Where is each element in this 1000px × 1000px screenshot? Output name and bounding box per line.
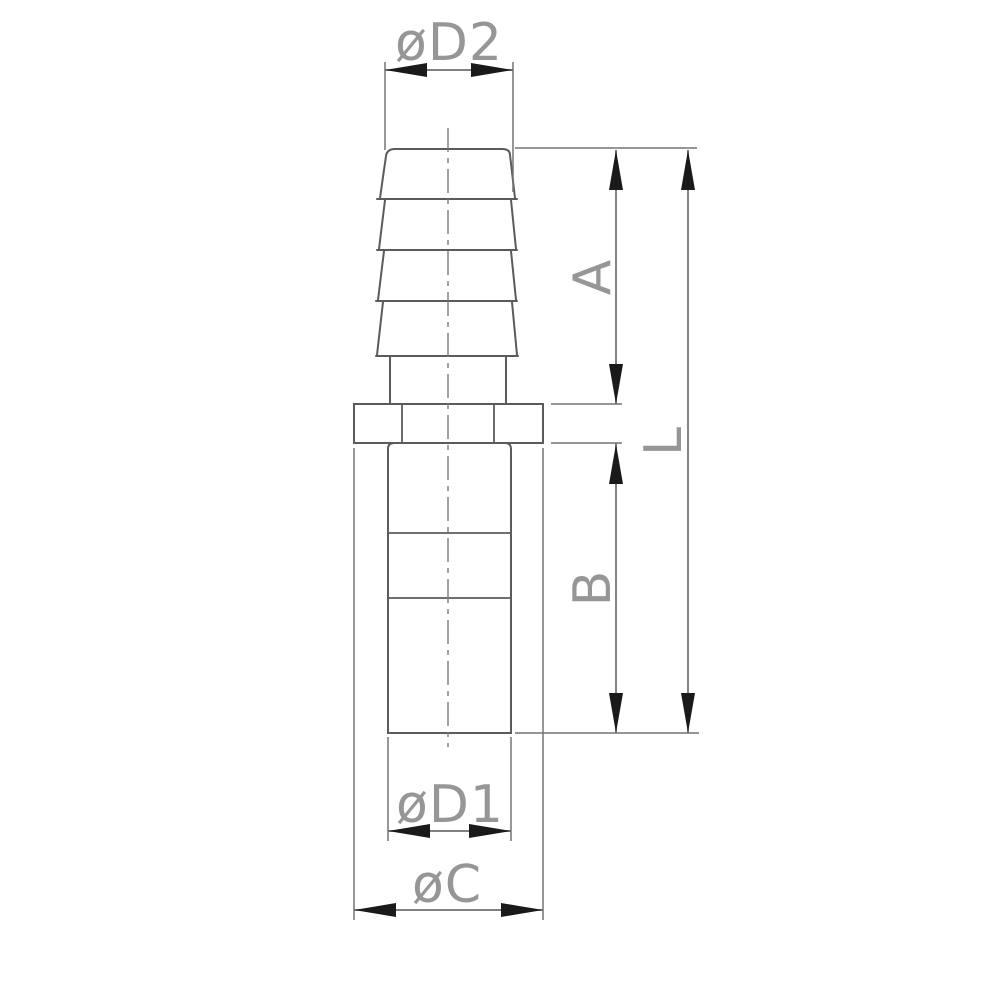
body: [388, 443, 511, 733]
dim-d1: øD1: [388, 737, 511, 841]
label-l: L: [634, 426, 694, 456]
technical-drawing-svg: øD2 A B L: [0, 0, 1000, 1000]
barb-3: [376, 251, 517, 301]
a-arrow-top: [609, 150, 623, 190]
label-d2: øD2: [395, 13, 503, 73]
c-arrow-left: [354, 903, 396, 917]
b-arrow-bottom: [609, 693, 623, 733]
part-outline: [354, 128, 543, 747]
barb-1: [377, 149, 517, 199]
barb-4: [376, 302, 518, 356]
drawing-canvas: øD2 A B L: [0, 0, 1000, 1000]
label-b: B: [563, 570, 623, 607]
dim-d2: øD2: [385, 13, 513, 192]
l-arrow-top: [681, 150, 695, 190]
l-arrow-bottom: [681, 693, 695, 733]
dim-b: B: [551, 443, 623, 733]
label-d1: øD1: [396, 775, 504, 835]
dim-a: A: [515, 148, 697, 404]
c-arrow-right: [501, 903, 543, 917]
b-arrow-top: [609, 444, 623, 484]
a-arrow-bottom: [609, 364, 623, 404]
barb-2: [377, 200, 517, 250]
label-a: A: [563, 259, 623, 296]
label-c: øC: [412, 855, 482, 915]
